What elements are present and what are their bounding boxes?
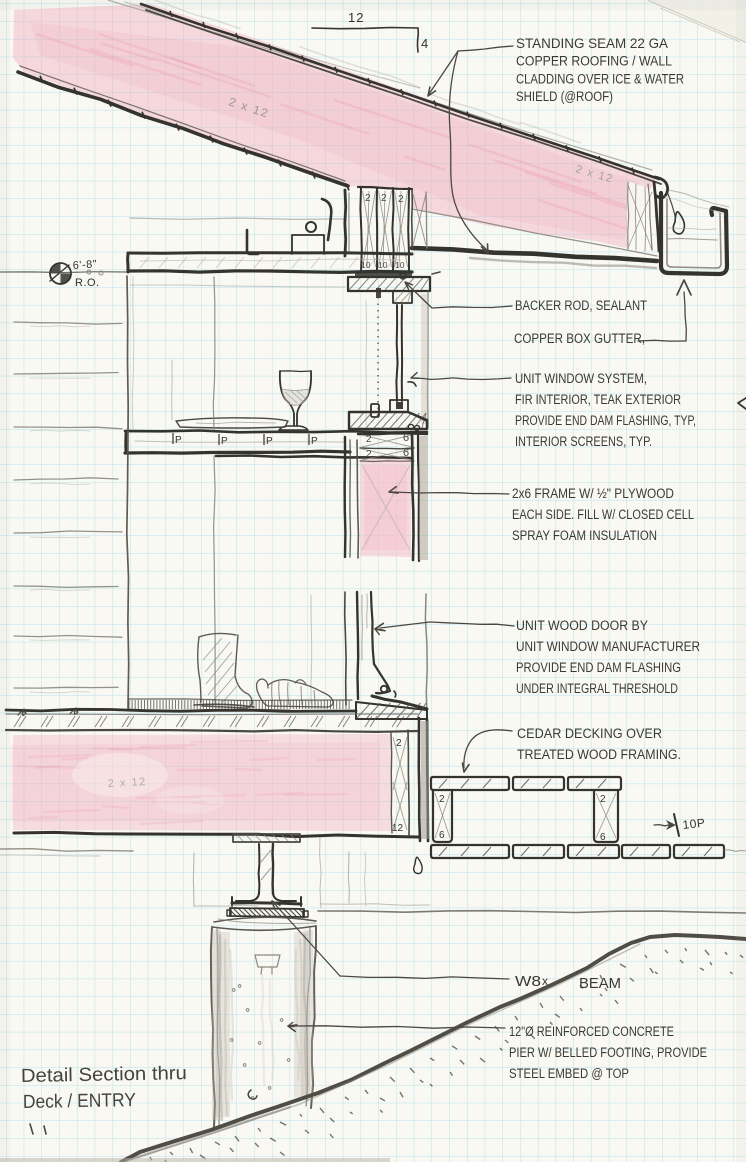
- svg-text:12: 12: [348, 10, 364, 25]
- svg-text:4: 4: [421, 36, 429, 51]
- svg-text:W8: W8: [515, 973, 541, 990]
- svg-text:R.O.: R.O.: [75, 277, 100, 289]
- svg-text:UNIT WOOD DOOR BY: UNIT WOOD DOOR BY: [516, 618, 648, 633]
- svg-text:10: 10: [361, 260, 371, 270]
- svg-text:2: 2: [396, 738, 402, 749]
- svg-text:P: P: [175, 435, 182, 446]
- svg-text:2: 2: [381, 193, 387, 204]
- svg-text:Detail Section thru: Detail Section thru: [21, 1063, 187, 1087]
- svg-text:2x6 FRAME W/ ½" PLYWOOD: 2x6 FRAME W/ ½" PLYWOOD: [512, 486, 674, 501]
- svg-text:CLADDING OVER ICE & WATER: CLADDING OVER ICE & WATER: [516, 71, 684, 86]
- svg-text:6: 6: [439, 830, 445, 841]
- svg-text:UNIT WINDOW MANUFACTURER: UNIT WINDOW MANUFACTURER: [516, 639, 700, 654]
- svg-text:P: P: [311, 436, 318, 447]
- svg-text:2: 2: [600, 794, 606, 805]
- svg-text:PROVIDE END DAM FLASHING, TYP,: PROVIDE END DAM FLASHING, TYP,: [515, 413, 696, 428]
- svg-text:INTERIOR SCREENS, TYP.: INTERIOR SCREENS, TYP.: [515, 434, 652, 449]
- svg-text:STANDING SEAM 22 GA: STANDING SEAM 22 GA: [516, 36, 668, 51]
- svg-text:FIR INTERIOR, TEAK EXTERIOR: FIR INTERIOR, TEAK EXTERIOR: [515, 392, 681, 407]
- svg-text:2: 2: [366, 434, 372, 445]
- svg-text:SPRAY FOAM INSULATION: SPRAY FOAM INSULATION: [512, 528, 657, 543]
- svg-text:COPPER BOX GUTTER,: COPPER BOX GUTTER,: [514, 331, 645, 346]
- svg-text:2: 2: [398, 194, 404, 205]
- svg-text:2 x 12: 2 x 12: [108, 776, 148, 790]
- svg-text:2: 2: [439, 794, 445, 805]
- svg-text:UNDER INTEGRAL THRESHOLD: UNDER INTEGRAL THRESHOLD: [516, 681, 678, 696]
- svg-text:6: 6: [403, 447, 409, 459]
- svg-text:COPPER ROOFING / WALL: COPPER ROOFING / WALL: [516, 54, 672, 69]
- svg-text:10: 10: [395, 260, 405, 270]
- svg-text:BEAM: BEAM: [579, 975, 621, 992]
- svg-text:P: P: [221, 436, 228, 447]
- svg-text:PIER W/ BELLED FOOTING, PROVID: PIER W/ BELLED FOOTING, PROVIDE: [509, 1045, 707, 1060]
- svg-text:STEEL EMBED @ TOP: STEEL EMBED @ TOP: [509, 1066, 629, 1081]
- svg-text:10: 10: [378, 260, 388, 270]
- svg-text:2: 2: [366, 449, 372, 460]
- svg-text:x: x: [542, 974, 548, 988]
- svg-text:EACH SIDE. FILL W/ CLOSED CELL: EACH SIDE. FILL W/ CLOSED CELL: [512, 507, 694, 522]
- svg-text:6: 6: [600, 832, 606, 843]
- svg-text:6'-8": 6'-8": [72, 258, 97, 272]
- svg-text:TREATED WOOD FRAMING.: TREATED WOOD FRAMING.: [517, 747, 681, 762]
- svg-text:2: 2: [365, 193, 371, 204]
- svg-text:12: 12: [392, 823, 404, 834]
- svg-text:10P: 10P: [682, 816, 706, 832]
- svg-text:Deck / ENTRY: Deck / ENTRY: [23, 1090, 137, 1113]
- svg-text:CEDAR DECKING OVER: CEDAR DECKING OVER: [517, 726, 662, 741]
- svg-text:UNIT WINDOW SYSTEM,: UNIT WINDOW SYSTEM,: [515, 371, 647, 386]
- svg-text:P: P: [266, 436, 273, 447]
- svg-text:BACKER ROD, SEALANT: BACKER ROD, SEALANT: [515, 298, 647, 313]
- svg-text:6: 6: [403, 432, 409, 444]
- svg-text:SHIELD (@ROOF): SHIELD (@ROOF): [516, 89, 613, 104]
- svg-text:12"Ø REINFORCED CONCRETE: 12"Ø REINFORCED CONCRETE: [509, 1024, 674, 1039]
- svg-text:PROVIDE END DAM FLASHING: PROVIDE END DAM FLASHING: [516, 660, 681, 675]
